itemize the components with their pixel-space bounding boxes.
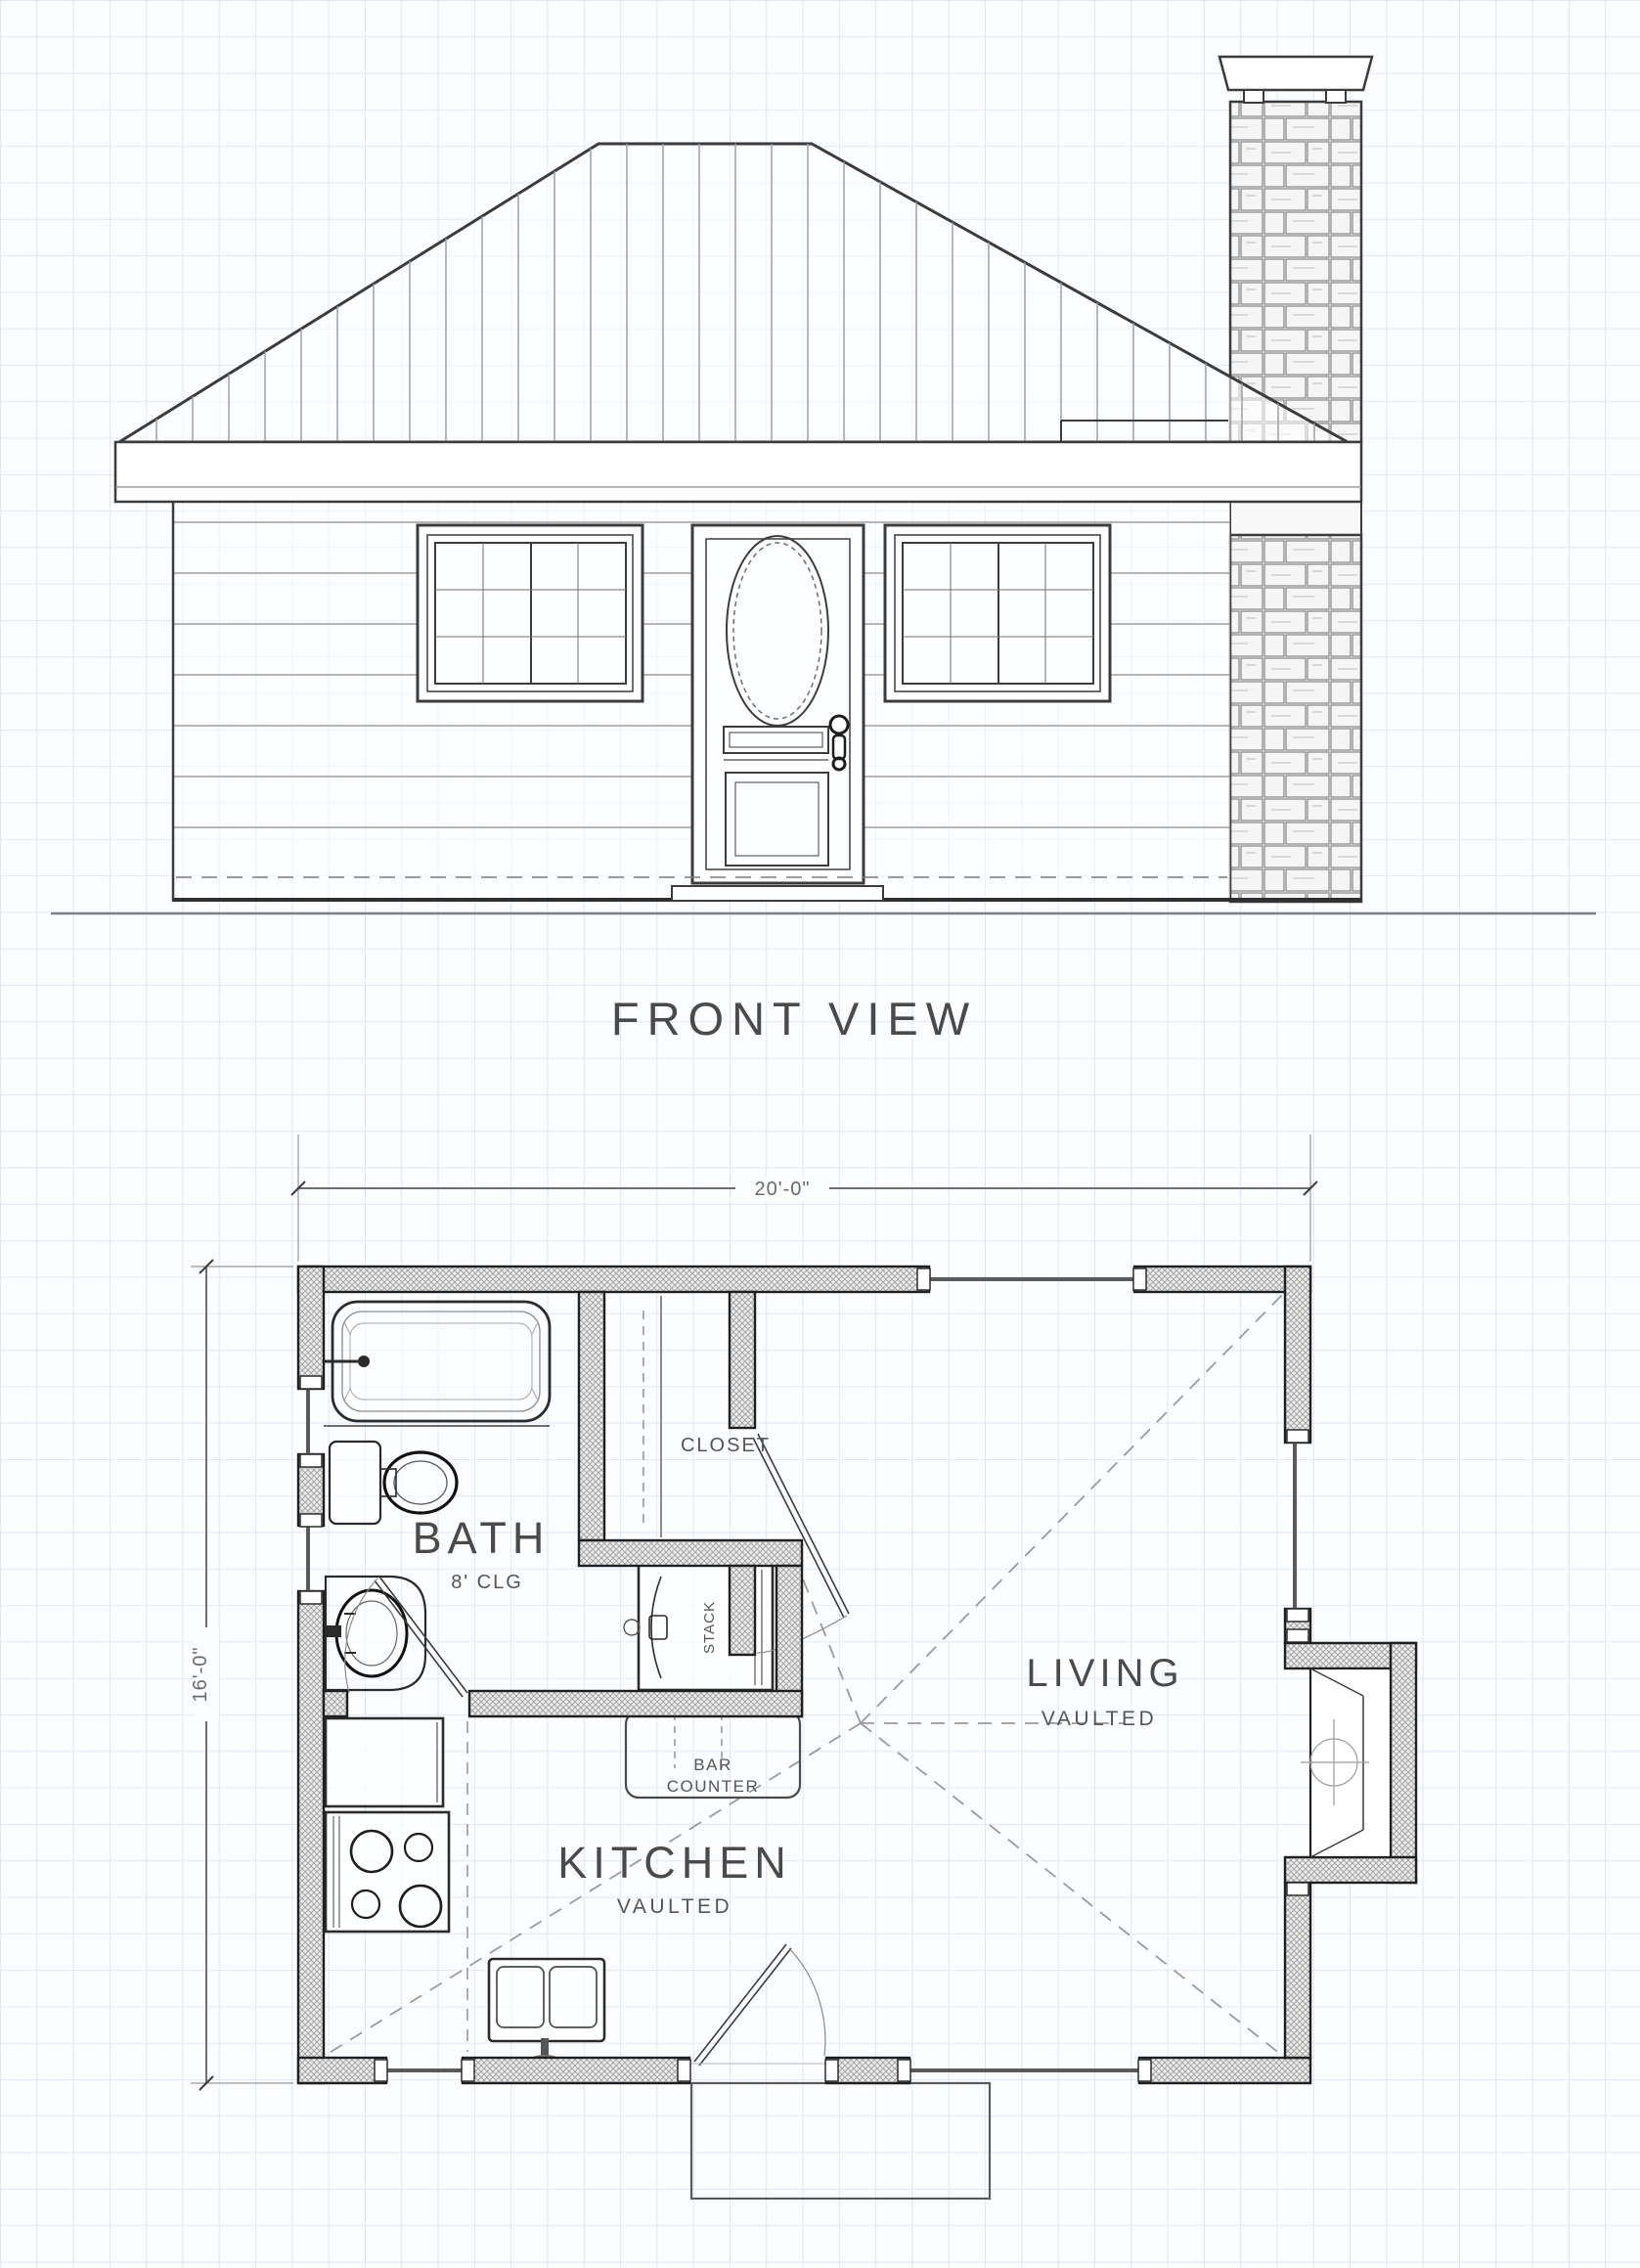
stack-wd-label-line1: STACK (701, 1601, 718, 1654)
front-view-label: FRONT VIEW (611, 993, 977, 1045)
elevation-window-right (885, 525, 1110, 701)
closet-label: CLOSET (681, 1435, 771, 1456)
height-dimension-label: 16'-0" (190, 1647, 211, 1703)
bath-label: BATH (413, 1513, 551, 1563)
door-stoop (672, 886, 883, 901)
width-dimension-label: 20'-0" (755, 1178, 811, 1200)
eave-fascia (115, 442, 1361, 502)
bath-ceiling-label: 8' CLG (451, 1572, 523, 1593)
kitchen-vaulted-label: VAULTED (617, 1895, 732, 1918)
elevation-entry-door (692, 525, 864, 883)
elevation-window-left (418, 525, 643, 701)
blueprint-page: FRONT VIEW (0, 0, 1640, 2268)
range-stove (326, 1812, 449, 1932)
living-vaulted-label: VAULTED (1042, 1708, 1157, 1730)
bar-counter-label-line1: BAR (693, 1756, 731, 1774)
fireplace (1301, 1668, 1391, 1857)
bathtub (324, 1302, 550, 1421)
blueprint-canvas: FRONT VIEW (0, 0, 1640, 2268)
refrigerator (326, 1718, 443, 1806)
kitchen-label: KITCHEN (557, 1838, 792, 1888)
bar-counter-label-line2: COUNTER (667, 1777, 760, 1796)
living-label: LIVING (1026, 1652, 1183, 1695)
